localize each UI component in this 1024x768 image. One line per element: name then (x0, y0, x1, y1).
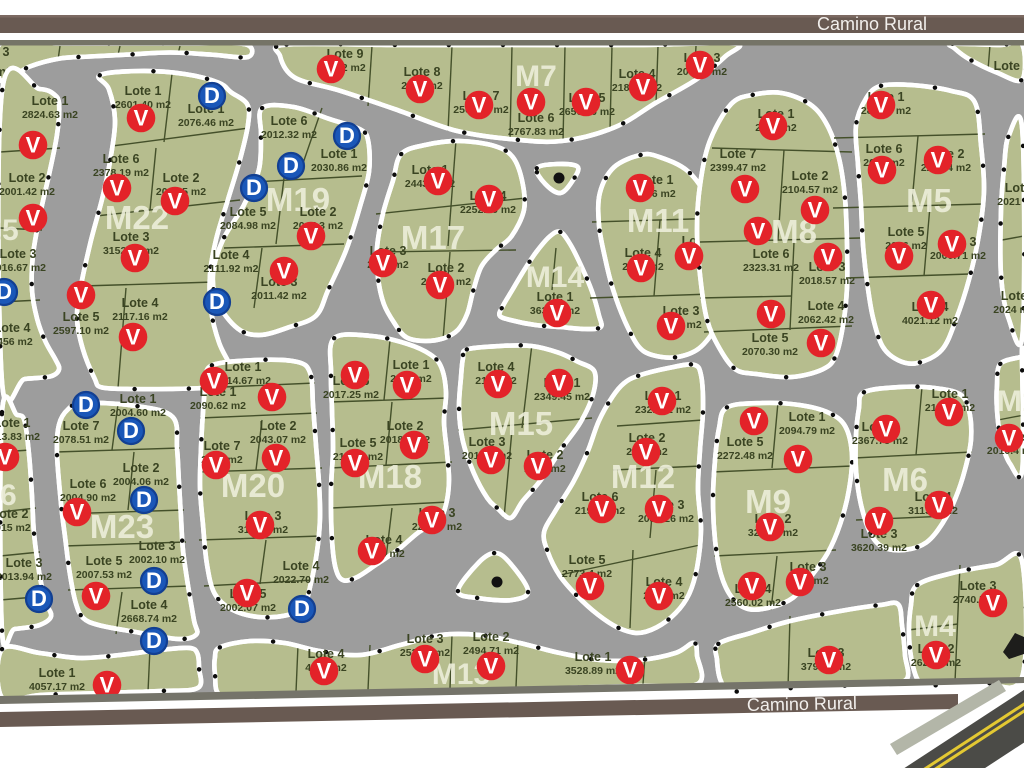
svg-text:V: V (365, 539, 380, 564)
svg-text:D: D (283, 153, 299, 178)
svg-text:2323.31 m2: 2323.31 m2 (743, 262, 799, 274)
svg-text:Lote 2: Lote 2 (123, 461, 160, 475)
svg-text:V: V (766, 114, 781, 139)
svg-text:Lote 2: Lote 2 (163, 171, 200, 185)
svg-text:Lote 7: Lote 7 (204, 439, 241, 453)
svg-text:V: V (879, 417, 894, 442)
svg-text:V: V (413, 77, 428, 102)
svg-text:2017.25 m2: 2017.25 m2 (323, 389, 379, 401)
svg-text:Lote 2: Lote 2 (0, 507, 28, 521)
svg-text:2070.30 m2: 2070.30 m2 (742, 346, 798, 358)
svg-text:V: V (747, 409, 762, 434)
svg-text:Lote 6: Lote 6 (753, 247, 790, 261)
svg-text:V: V (808, 198, 823, 223)
svg-text:V: V (376, 251, 391, 276)
svg-text:M7: M7 (515, 60, 557, 93)
svg-text:2272.48 m2: 2272.48 m2 (717, 450, 773, 462)
svg-text:2011.42 m2: 2011.42 m2 (251, 290, 307, 302)
svg-text:V: V (126, 325, 141, 350)
svg-text:D: D (78, 392, 94, 417)
svg-text:2022.70 m2: 2022.70 m2 (273, 574, 329, 586)
svg-text:Lote 1: Lote 1 (125, 84, 162, 98)
svg-text:V: V (751, 219, 766, 244)
svg-text:2767.83 m2: 2767.83 m2 (508, 126, 564, 138)
svg-text:2016.67 m2: 2016.67 m2 (0, 262, 46, 274)
svg-text:Lote 6: Lote 6 (866, 142, 903, 156)
svg-text:V: V (763, 515, 778, 540)
svg-text:V: V (26, 206, 41, 231)
svg-text:2090.62 m2: 2090.62 m2 (190, 400, 246, 412)
svg-text:V: V (634, 256, 649, 281)
svg-text:D: D (246, 175, 262, 200)
svg-text:V: V (814, 331, 829, 356)
svg-text:V: V (664, 314, 679, 339)
svg-text:Camino Rural: Camino Rural (817, 14, 927, 34)
svg-text:V: V (110, 176, 125, 201)
svg-text:Lote 7: Lote 7 (63, 419, 100, 433)
svg-text:V: V (924, 293, 939, 318)
svg-text:Lote 4: Lote 4 (283, 559, 320, 573)
svg-text:V: V (207, 369, 222, 394)
svg-text:V: V (74, 283, 89, 308)
svg-text:3: 3 (3, 45, 10, 59)
svg-text:3620.39 m2: 3620.39 m2 (851, 542, 907, 554)
svg-text:V: V (70, 500, 85, 525)
svg-text:V: V (524, 90, 539, 115)
svg-text:Lote: Lote (1005, 181, 1024, 195)
svg-text:V: V (531, 454, 546, 479)
svg-text:Lote 5: Lote 5 (340, 436, 377, 450)
svg-text:Lote 5: Lote 5 (888, 225, 925, 239)
svg-text:V: V (400, 373, 415, 398)
svg-text:V: V (595, 497, 610, 522)
svg-text:V: V (472, 93, 487, 118)
svg-text:V: V (26, 133, 41, 158)
svg-text:D: D (339, 123, 355, 148)
svg-text:2399.47 m2: 2399.47 m2 (710, 162, 766, 174)
svg-text:2104.57 m2: 2104.57 m2 (782, 184, 838, 196)
svg-text:Lote 2: Lote 2 (473, 630, 510, 644)
svg-text:Lote 6: Lote 6 (103, 152, 140, 166)
svg-text:2012.32 m2: 2012.32 m2 (261, 129, 317, 141)
svg-text:2076.46 m2: 2076.46 m2 (178, 117, 234, 129)
svg-text:Lote 2: Lote 2 (994, 59, 1024, 73)
svg-text:V: V (0, 445, 13, 470)
svg-text:Lote 2: Lote 2 (300, 205, 337, 219)
svg-text:D: D (209, 289, 225, 314)
svg-text:V: V (269, 446, 284, 471)
svg-text:2013.83 m2: 2013.83 m2 (0, 431, 40, 443)
svg-text:Lote: Lote (1001, 289, 1024, 303)
svg-text:V: V (929, 643, 944, 668)
svg-text:2015 m2: 2015 m2 (0, 522, 31, 534)
svg-text:2117.16 m2: 2117.16 m2 (112, 311, 168, 323)
svg-text:V: V (745, 574, 760, 599)
svg-text:V: V (128, 246, 143, 271)
svg-text:D: D (146, 628, 162, 653)
svg-text:D: D (294, 596, 310, 621)
svg-text:2078.51 m2: 2078.51 m2 (53, 434, 109, 446)
svg-text:V: V (942, 400, 957, 425)
svg-text:2030.86 m2: 2030.86 m2 (311, 162, 367, 174)
svg-text:Lote 4: Lote 4 (213, 248, 250, 262)
svg-text:V: V (793, 570, 808, 595)
svg-text:V: V (317, 659, 332, 684)
svg-text:2824.63 m2: 2824.63 m2 (22, 109, 78, 121)
svg-text:V: V (552, 371, 567, 396)
svg-text:V: V (425, 508, 440, 533)
svg-text:D: D (0, 279, 12, 304)
svg-text:V: V (431, 169, 446, 194)
svg-text:V: V (1002, 426, 1017, 451)
svg-text:Lote 1: Lote 1 (393, 358, 430, 372)
svg-text:Lote 3: Lote 3 (6, 556, 43, 570)
svg-text:V: V (407, 433, 422, 458)
svg-text:3528.89 m2: 3528.89 m2 (565, 665, 621, 677)
svg-text:2094.79 m2: 2094.79 m2 (779, 425, 835, 437)
svg-text:M16: M16 (997, 385, 1024, 418)
svg-text:Lote 1: Lote 1 (32, 94, 69, 108)
svg-text:V: V (892, 244, 907, 269)
svg-text:V: V (872, 509, 887, 534)
svg-text:V: V (209, 453, 224, 478)
svg-text:V: V (134, 106, 149, 131)
svg-text:V: V (822, 648, 837, 673)
svg-text:V: V (583, 574, 598, 599)
svg-text:D: D (146, 568, 162, 593)
svg-text:V: V (418, 647, 433, 672)
svg-text:V: V (100, 673, 115, 698)
svg-text:2062.42 m2: 2062.42 m2 (798, 314, 854, 326)
svg-text:V: V (168, 189, 183, 214)
svg-text:Lote 5: Lote 5 (569, 553, 606, 567)
svg-text:V: V (482, 187, 497, 212)
svg-text:V: V (639, 440, 654, 465)
svg-text:Lote 1: Lote 1 (39, 666, 76, 680)
svg-text:Lote 5: Lote 5 (86, 554, 123, 568)
svg-text:V: V (579, 90, 594, 115)
svg-text:D: D (136, 487, 152, 512)
svg-text:M17: M17 (401, 219, 465, 256)
svg-text:D: D (31, 586, 47, 611)
svg-text:V: V (652, 497, 667, 522)
svg-text:V: V (433, 273, 448, 298)
svg-text:Lote 6: Lote 6 (70, 477, 107, 491)
svg-text:V: V (931, 148, 946, 173)
svg-text:Lote 3: Lote 3 (407, 632, 444, 646)
svg-text:V: V (253, 513, 268, 538)
svg-text:2597.10 m2: 2597.10 m2 (53, 325, 109, 337)
svg-text:M11: M11 (627, 202, 689, 239)
svg-text:Lote 1: Lote 1 (789, 410, 826, 424)
svg-text:Lote 1: Lote 1 (0, 416, 30, 430)
svg-text:D: D (123, 418, 139, 443)
svg-text:Lote 5: Lote 5 (63, 310, 100, 324)
svg-text:Camino Rural: Camino Rural (747, 693, 857, 715)
svg-text:V: V (682, 244, 697, 269)
svg-text:25: 25 (0, 214, 19, 247)
svg-text:V: V (738, 177, 753, 202)
svg-text:Lote 4: Lote 4 (122, 296, 159, 310)
svg-text:V: V (874, 93, 889, 118)
svg-text:V: V (623, 658, 638, 683)
svg-text:V: V (484, 448, 499, 473)
svg-text:Lote 7: Lote 7 (720, 147, 757, 161)
svg-text:V: V (277, 259, 292, 284)
svg-text:Lote 2: Lote 2 (387, 419, 424, 433)
svg-text:V: V (484, 654, 499, 679)
svg-text:V: V (265, 385, 280, 410)
svg-text:V: V (693, 53, 708, 78)
svg-text:Lote 3: Lote 3 (113, 230, 150, 244)
svg-text:M5: M5 (906, 182, 952, 219)
svg-text:V: V (821, 245, 836, 270)
svg-text:4057.17 m2: 4057.17 m2 (29, 681, 85, 693)
svg-text:2456 m2: 2456 m2 (0, 336, 33, 348)
svg-text:Lote 4: Lote 4 (131, 598, 168, 612)
svg-text:Lote 4: Lote 4 (0, 321, 30, 335)
svg-text:Lote 5: Lote 5 (727, 435, 764, 449)
svg-text:V: V (324, 57, 339, 82)
svg-text:V: V (550, 301, 565, 326)
svg-text:V: V (875, 158, 890, 183)
svg-text:V: V (791, 447, 806, 472)
svg-text:2021 m2: 2021 m2 (997, 196, 1024, 208)
svg-text:Lote 2: Lote 2 (792, 169, 829, 183)
svg-text:V: V (932, 493, 947, 518)
svg-text:Lote 2: Lote 2 (9, 171, 46, 185)
svg-text:2007.53 m2: 2007.53 m2 (76, 569, 132, 581)
svg-text:V: V (240, 581, 255, 606)
svg-text:2111.92 m2: 2111.92 m2 (204, 263, 259, 275)
svg-text:Lote 5: Lote 5 (230, 205, 267, 219)
svg-text:2001.42 m2: 2001.42 m2 (0, 186, 55, 198)
svg-text:2668.74 m2: 2668.74 m2 (121, 613, 177, 625)
svg-text:2084.98 m2: 2084.98 m2 (220, 220, 276, 232)
svg-text:V: V (633, 176, 648, 201)
svg-text:V: V (945, 232, 960, 257)
svg-text:Lote 1: Lote 1 (120, 392, 157, 406)
svg-text:2013.94 m2: 2013.94 m2 (0, 571, 52, 583)
svg-text:V: V (655, 389, 670, 414)
svg-text:Lote 1: Lote 1 (575, 650, 612, 664)
svg-text:V: V (304, 224, 319, 249)
svg-text:Lote 3: Lote 3 (0, 247, 36, 261)
svg-text:V: V (348, 363, 363, 388)
svg-text:V: V (636, 75, 651, 100)
svg-text:2024 m2: 2024 m2 (993, 304, 1024, 316)
svg-text:Lote 2: Lote 2 (260, 419, 297, 433)
svg-text:Lote 3: Lote 3 (139, 539, 176, 553)
svg-text:V: V (986, 591, 1001, 616)
svg-text:M4: M4 (914, 610, 956, 643)
svg-text:V: V (491, 372, 506, 397)
svg-text:Lote 4: Lote 4 (808, 299, 845, 313)
svg-text:Lote 6: Lote 6 (271, 114, 308, 128)
svg-text:Lote 5: Lote 5 (752, 331, 789, 345)
svg-text:M20: M20 (221, 467, 285, 504)
svg-text:V: V (764, 302, 779, 327)
svg-text:2018.57 m2: 2018.57 m2 (799, 275, 855, 287)
svg-text:D: D (204, 83, 220, 108)
svg-text:V: V (652, 584, 667, 609)
svg-text:V: V (348, 451, 363, 476)
svg-text:Lote 1: Lote 1 (225, 360, 262, 374)
svg-text:V: V (89, 584, 104, 609)
svg-text:2002.10 m2: 2002.10 m2 (129, 554, 185, 566)
